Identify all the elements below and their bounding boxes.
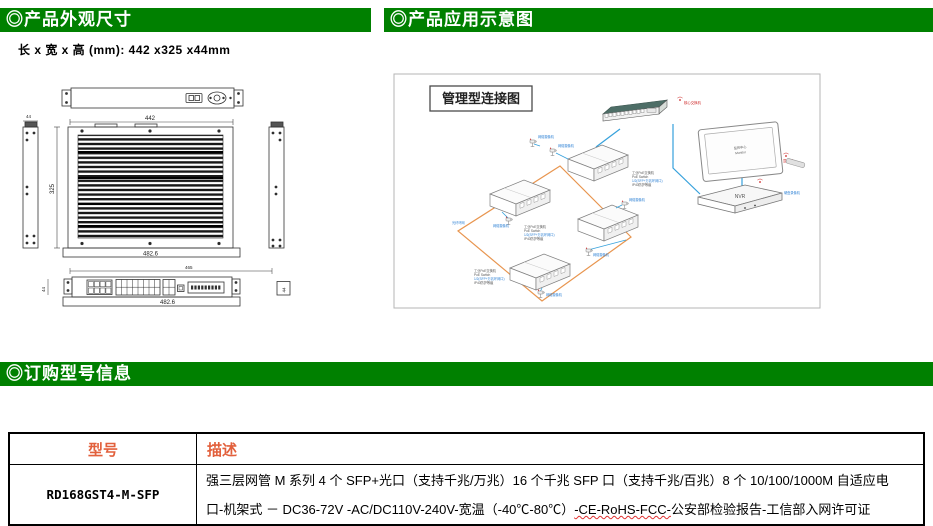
description-line-2-spellcheck: -CE-RoHS-FCC-: [574, 502, 671, 517]
camera-label: 网络摄像机: [546, 292, 563, 297]
svg-text:44: 44: [282, 287, 287, 293]
nvr-label: NVR: [735, 194, 746, 200]
ordering-table: 型号 描述 RD168GST4-M-SFP 强三层网管 M 系列 4 个 SFP…: [8, 432, 925, 526]
side-view-left: 44: [23, 114, 38, 248]
description-line-2-pre: 口-机架式 － DC36-72V -AC/DC110V-240V-宽温（-40℃…: [206, 502, 574, 517]
section-title-ordering: ◎订购型号信息: [6, 364, 132, 383]
camera-label: 网络摄像机: [493, 223, 510, 228]
section-title-application: ◎产品应用示意图: [390, 10, 534, 29]
core-switch-label: 核心交换机: [684, 100, 702, 105]
description-line-2-post: 公安部检验报告-工信部入网许可证: [671, 502, 870, 517]
svg-text:465: 465: [185, 265, 193, 270]
svg-text:44: 44: [41, 286, 46, 292]
diagram-title: 管理型连接图: [442, 91, 520, 106]
col-header-model: 型号: [9, 433, 197, 465]
camera-label: 网络摄像机: [593, 252, 610, 257]
model-cell: RD168GST4-M-SFP: [9, 465, 197, 526]
table-header-row: 型号 描述: [9, 433, 924, 465]
table-row: RD168GST4-M-SFP 强三层网管 M 系列 4 个 SFP+光口（支持…: [9, 465, 924, 526]
mechanical-drawing: 442 44 325 482.6: [0, 60, 380, 340]
side-view-right: [269, 122, 284, 248]
section-header-appearance: ◎产品外观尺寸: [0, 8, 371, 32]
description-cell: 强三层网管 M 系列 4 个 SFP+光口（支持千兆/万兆）16 个千兆 SFP…: [197, 465, 925, 526]
front-view: 465: [41, 265, 290, 306]
application-diagram: 管理型连接图 光纤环网 核心交换机 监控中心 Monitor: [390, 72, 825, 312]
svg-text:442: 442: [145, 116, 156, 122]
svg-text:44: 44: [26, 114, 32, 119]
svg-text:482.6: 482.6: [160, 300, 176, 306]
svg-text:IP40防护等级: IP40防护等级: [524, 236, 544, 241]
rear-view: [62, 88, 243, 108]
svg-text:IP40防护等级: IP40防护等级: [474, 280, 494, 285]
dim-325: 325: [50, 127, 60, 248]
svg-text:325: 325: [50, 183, 56, 194]
description-line-2: 口-机架式 － DC36-72V -AC/DC110V-240V-宽温（-40℃…: [206, 495, 915, 524]
camera-label: 网络摄像机: [538, 134, 555, 139]
section-header-application: ◎产品应用示意图: [384, 8, 933, 32]
camera-label: 网络摄像机: [629, 197, 646, 202]
top-view: 482.6: [63, 124, 240, 258]
svg-text:482.6: 482.6: [143, 252, 159, 258]
section-header-ordering: ◎订购型号信息: [0, 362, 933, 386]
svg-text:IP40防护等级: IP40防护等级: [632, 182, 652, 187]
section-title-appearance: ◎产品外观尺寸: [6, 10, 132, 29]
dimensions-text: 长 x 宽 x 高 (mm): 442 x325 x44mm: [18, 41, 230, 58]
monitor: 监控中心 Monitor: [698, 122, 783, 182]
camera-label: 网络摄像机: [558, 143, 575, 148]
description-line-1: 强三层网管 M 系列 4 个 SFP+光口（支持千兆/万兆）16 个千兆 SFP…: [206, 466, 915, 495]
col-header-description: 描述: [197, 433, 925, 465]
ring-label: 光纤环网: [452, 220, 465, 225]
nvr-side-label: 硬盘录像机: [784, 190, 801, 195]
